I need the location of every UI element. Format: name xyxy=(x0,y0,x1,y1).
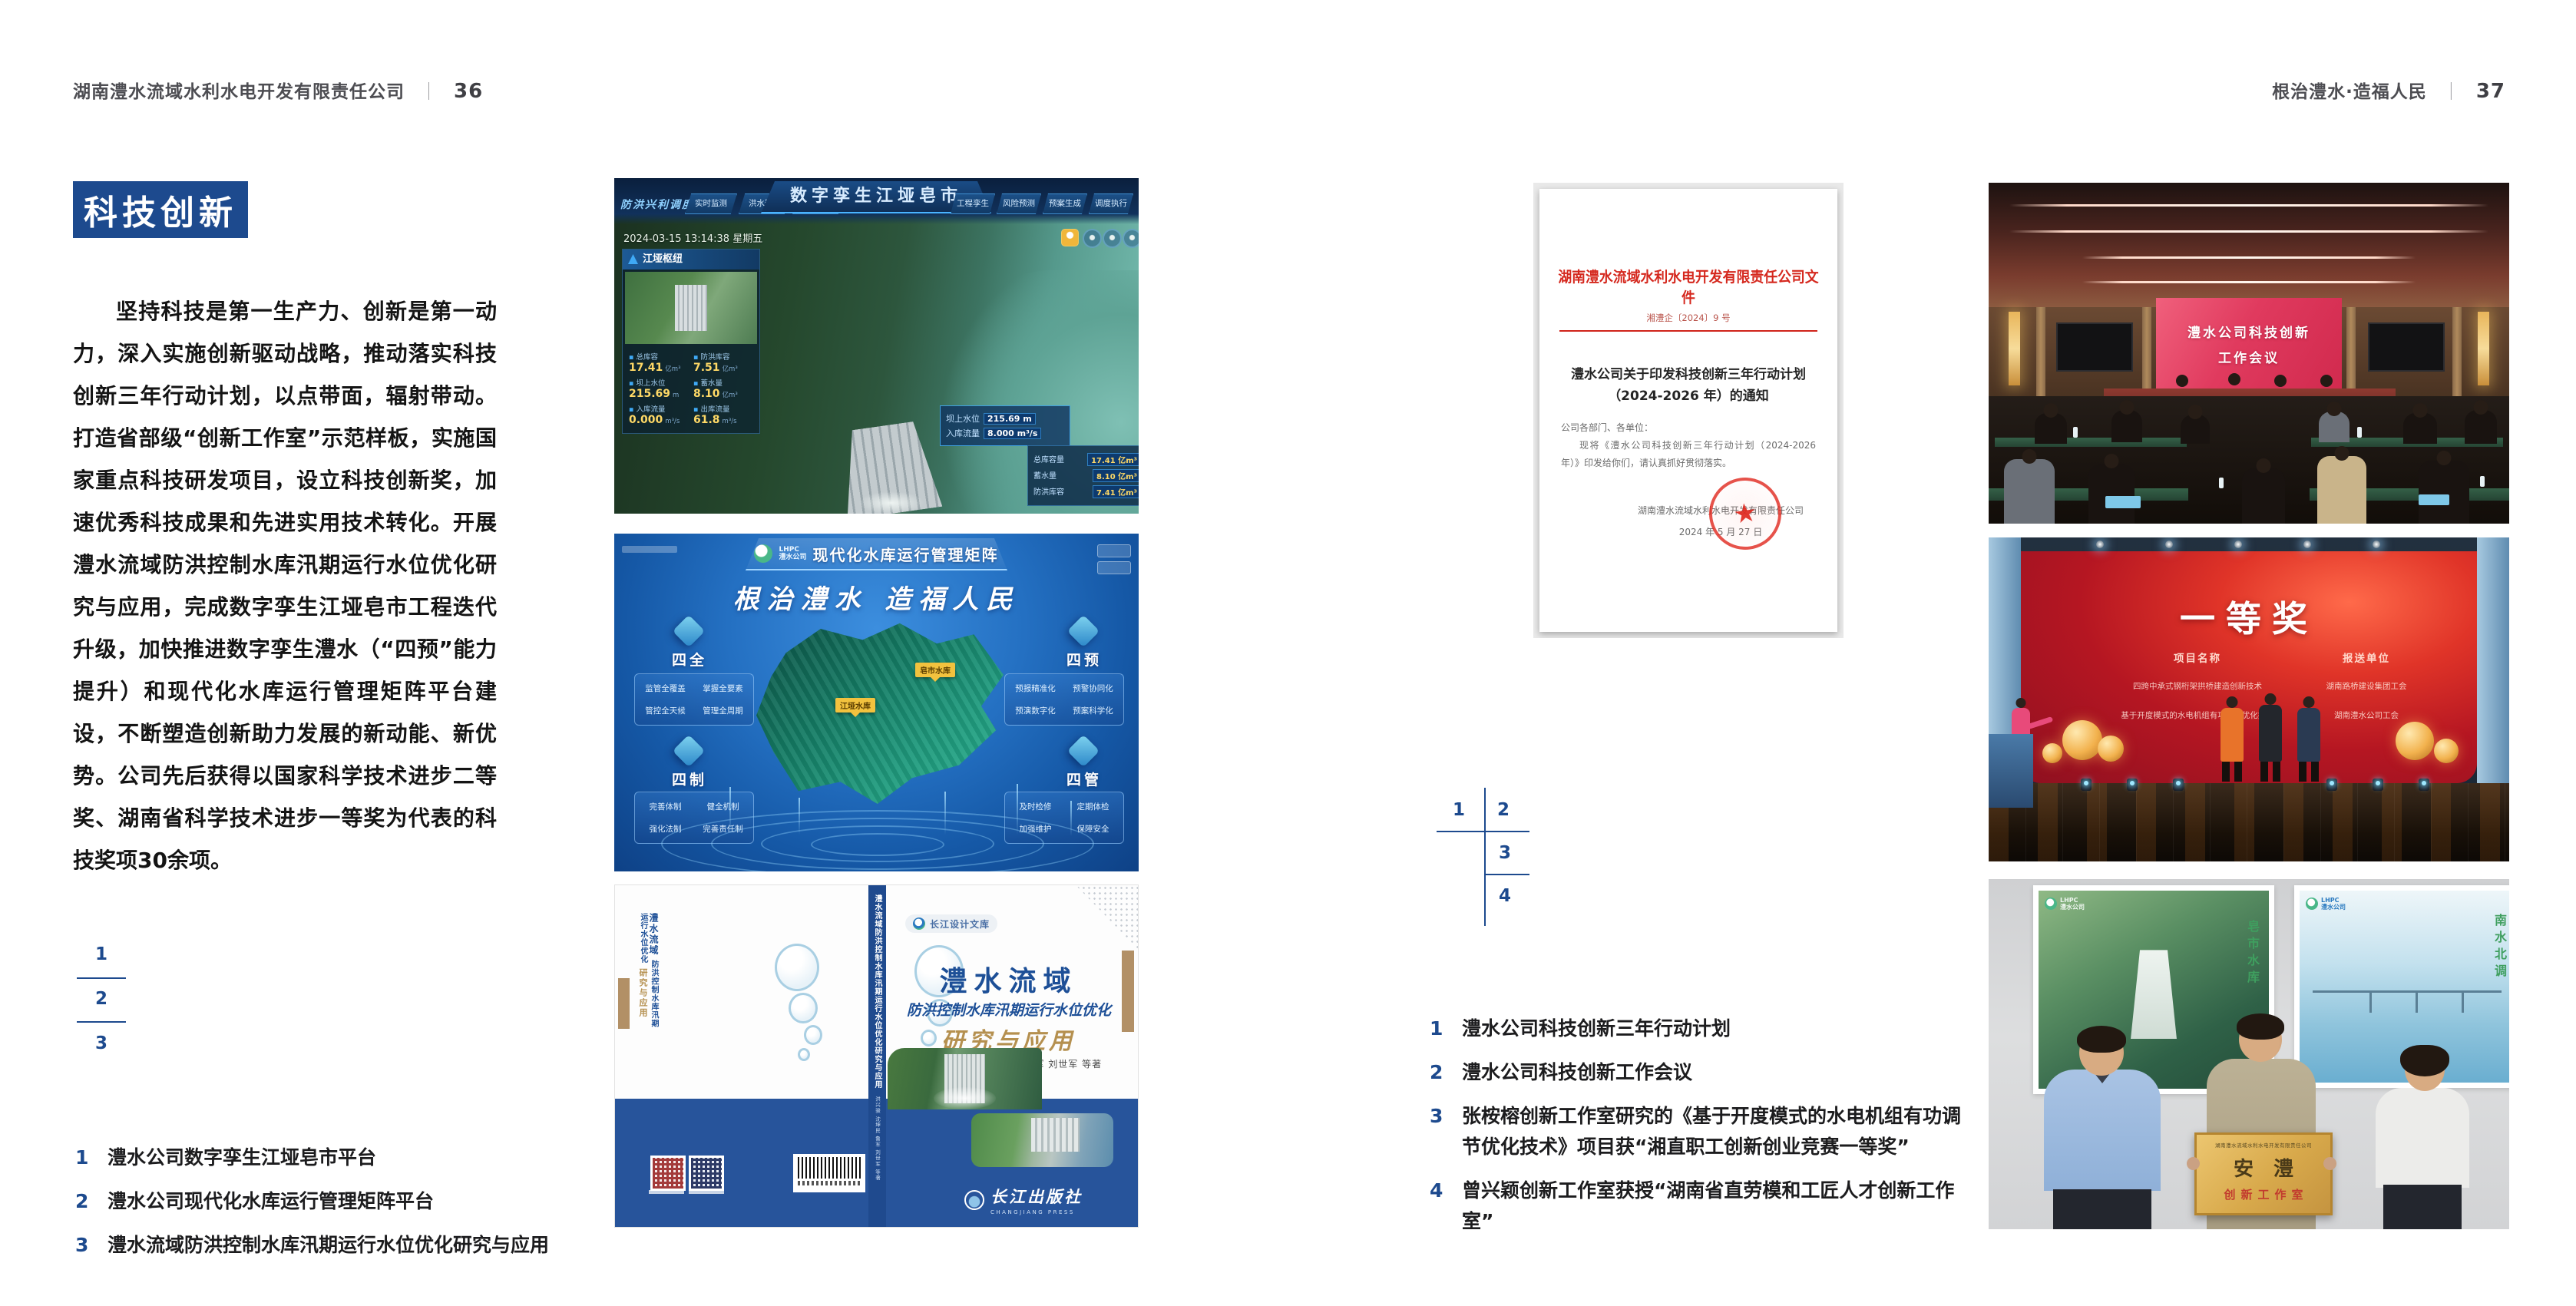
magazine-spread: 湖南澧水流域水利水电开发有限责任公司 ｜ 36 根治澧水·造福人民 ｜ 37 科… xyxy=(0,0,2576,1306)
unit-line: 湖南路桥建设集团工会 xyxy=(2259,680,2474,692)
woman-right-shirt xyxy=(2376,1088,2469,1188)
publisher-logo-icon xyxy=(913,918,925,930)
tab-plan-generate[interactable]: 预案生成 xyxy=(1043,193,1087,214)
header-divider: ｜ xyxy=(2442,77,2461,103)
qr-code xyxy=(689,1156,724,1191)
spray-mist xyxy=(934,1087,995,1109)
halftone-corner-pattern xyxy=(1076,885,1139,951)
document-sheet xyxy=(1539,189,1837,632)
waterfall xyxy=(2131,950,2177,1039)
audience-person xyxy=(2111,410,2142,442)
lhpc-logo-icon xyxy=(2306,898,2318,910)
dashboard-mode-label: 防洪兴利调度 xyxy=(620,197,694,212)
spine-authors: 洪兴骏 沈坤民 鲁军 刘世军 等著 xyxy=(874,1096,881,1181)
right-page-header: 根治澧水·造福人民 ｜ 37 xyxy=(2272,77,2505,103)
spotlight xyxy=(2303,541,2311,548)
dashboard-datetime: 2024-03-15 13:14:38 星期五 xyxy=(623,230,762,245)
group-icon-siquan xyxy=(673,615,705,647)
caption-number: 2 xyxy=(75,1186,95,1217)
group-icon-sizhi xyxy=(673,735,705,767)
group-label-sizhi: 四制 xyxy=(659,769,720,789)
podium xyxy=(1989,734,2033,808)
page-number-right: 37 xyxy=(2476,80,2505,103)
caption-row: 3 张桉榕创新工作室研究的《基于开度模式的水电机组有功调节优化技术》项目获“湘直… xyxy=(1430,1101,1976,1162)
basin-3d-map xyxy=(756,620,1004,804)
map-marker-jiangya[interactable]: 江垭水库 xyxy=(835,698,875,713)
isbn-barcode xyxy=(793,1154,865,1192)
plaque-org-line: 湖南澧水流域水利水电开发有限责任公司 xyxy=(2197,1141,2330,1149)
mini-dam xyxy=(675,285,706,331)
wall-pilaster xyxy=(2142,307,2151,396)
hub-panel-title: 江垭枢纽 xyxy=(623,250,759,269)
map-data-callout: 坝上水位215.69 m 入库流量8.000 m³/s xyxy=(940,405,1070,446)
man-left-head xyxy=(2079,1030,2124,1076)
bridge xyxy=(2313,990,2502,993)
audience-person xyxy=(2403,413,2437,444)
wall-pilaster xyxy=(2036,307,2045,396)
innovation-workshop-plaque: 湖南澧水流域水利水电开发有限责任公司 安澧 创新工作室 xyxy=(2194,1132,2333,1215)
platform-title: 现代化水库运行管理矩阵 xyxy=(813,543,999,565)
spotlight xyxy=(2373,541,2380,548)
poster-logo: LHPC澧水公司 xyxy=(2306,897,2346,911)
group-panel-siyu: 预报精准化预警协同化 预演数字化预案科学化 xyxy=(1004,673,1124,726)
caption-text: 张桉榕创新工作室研究的《基于开度模式的水电机组有功调节优化技术》项目获“湘直职工… xyxy=(1462,1101,1976,1162)
section-title: 科技创新 xyxy=(73,181,248,238)
photo-plaque-group: LHPC澧水公司 皂市水库 LHPC澧水公司 南水北调 湖南澧水流域水利水电开发 xyxy=(1989,879,2509,1229)
light-pillar xyxy=(799,798,800,835)
light-pillar xyxy=(1017,784,1018,835)
unit-line: 湖南澧水公司工会 xyxy=(2259,709,2474,721)
body-paragraph: 坚持科技是第一生产力、创新是第一动力，深入实施创新驱动战略，推动落实科技创新三年… xyxy=(73,290,497,881)
caption-row: 1 澧水公司数字孪生江垭皂市平台 xyxy=(75,1142,567,1173)
group-label-siquan: 四全 xyxy=(659,649,720,670)
fullscreen-icon[interactable] xyxy=(1123,229,1139,248)
legs xyxy=(2260,762,2280,782)
photo-matrix-platform: LHPC澧水公司 现代化水库运行管理矩阵 根治澧水 造福人民 皂市水库 江垭水库… xyxy=(614,534,1139,871)
left-captions: 1 澧水公司数字孪生江垭皂市平台 2 澧水公司现代化水库运行管理矩阵平台 3 澧… xyxy=(75,1142,567,1274)
light-pillar xyxy=(729,787,731,833)
hub-stats-grid: 总库容17.41亿m³ 防洪库容7.51亿m³ 坝上水位215.69m 蓄水量8… xyxy=(623,346,759,433)
figure-map-number: 2 xyxy=(1497,800,1510,820)
photo-award-ceremony: 一等奖 项目名称 报送单位 四跨中承式钢桁架拱桥建造创新技术 基于开度模式的水电… xyxy=(1989,537,2509,861)
caption-number: 1 xyxy=(75,1142,95,1173)
column-header-project: 项目名称 xyxy=(2105,650,2290,665)
book-title: 澧水流域 xyxy=(888,959,1129,999)
ceiling-light xyxy=(2082,281,2416,283)
woman-right-pants xyxy=(2383,1185,2462,1229)
column-header-unit: 报送单位 xyxy=(2274,650,2459,665)
ceiling-light xyxy=(2082,256,2416,259)
water-droplet xyxy=(789,993,818,1023)
right-captions: 1 澧水公司科技创新三年行动计划 2 澧水公司科技创新工作会议 3 张桉榕创新工… xyxy=(1430,1013,1976,1250)
woman-right-head xyxy=(2405,1048,2445,1091)
stat-cell: 入库流量0.000m³/s xyxy=(629,403,689,426)
audience-person xyxy=(2004,459,2055,524)
golden-orb xyxy=(2042,743,2062,763)
caption-text: 澧水公司现代化水库运行管理矩阵平台 xyxy=(107,1186,434,1217)
stat-cell: 总库容17.41亿m³ xyxy=(629,351,689,374)
figure-map-number: 1 xyxy=(95,944,107,964)
audience-person xyxy=(2319,412,2349,442)
golden-orb xyxy=(2062,720,2102,760)
hand xyxy=(2323,1157,2336,1170)
book-subtitle: 防洪控制水库汛期运行水位优化 xyxy=(882,999,1136,1020)
cover-powerhouse-photo xyxy=(971,1113,1113,1167)
screen-title-line1: 澧水公司科技创新 xyxy=(2187,322,2310,341)
audience-person xyxy=(2181,415,2210,444)
tab-realtime-monitor[interactable]: 实时监测 xyxy=(685,193,737,214)
poster-calligraphy: 皂市水库 xyxy=(2243,920,2261,987)
stat-cell: 防洪库容7.51亿m³ xyxy=(693,351,753,374)
front-tan-bar xyxy=(1122,951,1134,1032)
caption-number: 2 xyxy=(1430,1057,1450,1088)
ceiling xyxy=(1989,183,2509,307)
tab-dispatch-execute[interactable]: 调度执行 xyxy=(1089,193,1133,214)
map-marker-zaoshi[interactable]: 皂市水库 xyxy=(915,663,955,677)
book-spine: 澧水流域防洪控制水库汛期运行水位优化研究与应用 洪兴骏 沈坤民 鲁军 刘世军 等… xyxy=(868,885,886,1228)
water-droplet xyxy=(798,1048,810,1061)
company-name: 湖南澧水流域水利水电开发有限责任公司 xyxy=(73,77,405,103)
presenter-suit xyxy=(2259,705,2282,762)
spotlight xyxy=(2234,541,2242,548)
spine-title: 澧水流域防洪控制水库汛期运行水位优化研究与应用 xyxy=(871,894,883,1089)
stat-cell: 坝上水位215.69m xyxy=(629,377,689,400)
audience-person xyxy=(2035,413,2067,444)
man-center-head xyxy=(2239,1017,2282,1062)
document-red-rule xyxy=(1559,330,1817,332)
winner-navy xyxy=(2297,708,2320,762)
tissue-box xyxy=(2105,496,2141,508)
caption-row: 4 曾兴颖创新工作室获授“湖南省直劳模和工匠人才创新工作室” xyxy=(1430,1175,1976,1237)
audience-person xyxy=(2317,456,2366,524)
side-screen xyxy=(2368,322,2445,372)
platform-button[interactable] xyxy=(1097,561,1131,574)
group-icon-siguan xyxy=(1067,735,1100,767)
water-bottle xyxy=(2219,478,2224,488)
platform-button[interactable] xyxy=(1097,544,1131,557)
stage-light xyxy=(2419,779,2429,791)
figure-map-number: 3 xyxy=(1499,843,1511,863)
side-screen xyxy=(2056,322,2133,372)
reservoir-summary-panel: 总库容量17.41 亿m³ 蓄水量8.10 亿m³ 防洪库容7.41 亿m³ xyxy=(1027,445,1139,506)
desk-row xyxy=(1995,438,2187,447)
header-divider: ｜ xyxy=(420,77,438,103)
back-cover-title: 澧水流域 防洪控制水库汛期运行水位优化 研究与应用 xyxy=(638,913,659,1030)
caption-row: 1 澧水公司科技创新三年行动计划 xyxy=(1430,1013,1976,1044)
dam xyxy=(1031,1118,1080,1152)
qr-caption-line xyxy=(689,1190,724,1194)
group-label-siyu: 四预 xyxy=(1053,649,1115,670)
man-left-pants xyxy=(2053,1189,2151,1229)
caption-number: 4 xyxy=(1430,1175,1450,1237)
audience-person xyxy=(2242,468,2285,524)
lhpc-logo-icon xyxy=(2045,898,2057,910)
figure-map-line xyxy=(1484,874,1529,875)
plaque-main-text: 安澧 xyxy=(2197,1153,2330,1182)
tab-engineering-twin[interactable]: 工程孪生 xyxy=(951,193,995,214)
caption-text: 澧水流域防洪控制水库汛期运行水位优化研究与应用 xyxy=(107,1230,549,1261)
tissue-box xyxy=(2419,494,2449,505)
locate-icon[interactable] xyxy=(1103,229,1122,248)
winner-orange xyxy=(2221,708,2244,762)
figure-map-line xyxy=(77,1021,126,1023)
screen-title-line2: 工作会议 xyxy=(2218,347,2280,366)
stage-light xyxy=(2326,779,2337,791)
panelist-head xyxy=(2274,375,2287,387)
left-page-header: 湖南澧水流域水利水电开发有限责任公司 ｜ 36 xyxy=(73,77,483,103)
man-left-shirt xyxy=(2044,1070,2161,1191)
water-bottle xyxy=(2073,427,2078,438)
water-droplet xyxy=(775,944,819,991)
dam-spillway-foam xyxy=(858,491,924,514)
group-icon-siyu xyxy=(1067,615,1100,647)
award-title: 一等奖 xyxy=(2021,591,2477,642)
series-badge: 长江设计文库 xyxy=(905,914,997,933)
figure-map-number: 2 xyxy=(95,989,107,1009)
qr-code xyxy=(650,1156,686,1191)
settings-icon[interactable] xyxy=(1083,229,1102,248)
group-panel-siquan: 监管全覆盖掌握全要素 管控全天候管理全周期 xyxy=(634,673,754,726)
hub-info-panel: 江垭枢纽 总库容17.41亿m³ 防洪库容7.51亿m³ 坝上水位215.69m… xyxy=(622,249,760,434)
plaque-sub-text: 创新工作室 xyxy=(2197,1186,2330,1202)
document-number: 湘澧企〔2024〕9 号 xyxy=(1544,312,1833,324)
figure-map-number: 1 xyxy=(1453,800,1465,820)
stat-cell: 蓄水量8.10亿m³ xyxy=(693,377,753,400)
caption-row: 2 澧水公司科技创新工作会议 xyxy=(1430,1057,1976,1088)
photo-book-cover: 澧水流域 防洪控制水库汛期运行水位优化 研究与应用 澧水流域防洪控制水库汛期运行… xyxy=(614,884,1139,1228)
figure-map-number: 4 xyxy=(1499,886,1511,906)
golden-orb xyxy=(2396,722,2434,760)
radar-ring xyxy=(811,833,944,856)
audience-person xyxy=(2465,410,2497,444)
platform-header: LHPC澧水公司 现代化水库运行管理矩阵 xyxy=(746,538,1007,570)
photo-digital-twin-dashboard: 防洪兴利调度 实时监测 洪水预报 防洪预警 数字孪生江垭皂市 风险预测 预案生成… xyxy=(614,178,1139,514)
group-label-siguan: 四管 xyxy=(1053,769,1115,789)
audience-person xyxy=(2088,464,2135,524)
caption-number: 1 xyxy=(1430,1013,1450,1044)
photo-official-document: 湖南澧水流域水利水电开发有限责任公司文件 湘澧企〔2024〕9 号 澧水公司关于… xyxy=(1533,183,1844,638)
seal-star-icon: ★ xyxy=(1732,499,1759,528)
golden-orb xyxy=(2098,736,2124,762)
document-body: 现将《澧水公司科技创新三年行动计划（2024-2026 年）》印发给你们，请认真… xyxy=(1561,437,1816,472)
qr-caption-line xyxy=(649,1190,684,1194)
publisher-name-en: CHANGJIANG PRESS xyxy=(990,1209,1083,1215)
hub-thumbnail-photo xyxy=(625,272,757,344)
user-icon[interactable] xyxy=(1061,229,1079,246)
document-red-header: 湖南澧水流域水利水电开发有限责任公司文件 xyxy=(1553,266,1824,307)
stage-floor xyxy=(1989,783,2509,861)
wall-pilaster xyxy=(2346,307,2356,396)
figure-map-number: 3 xyxy=(95,1033,107,1053)
platform-datetime-placeholder xyxy=(622,546,677,553)
water-bottle xyxy=(2480,476,2485,487)
caption-number: 3 xyxy=(1430,1101,1450,1162)
panelist-head xyxy=(2320,375,2333,387)
document-title: 澧水公司关于印发科技创新三年行动计划 （2024-2026 年）的通知 xyxy=(1544,364,1833,407)
figure-map-line xyxy=(1437,831,1529,832)
back-tan-bar xyxy=(618,978,630,1029)
series-name: 长江设计文库 xyxy=(930,918,990,931)
caption-text: 澧水公司科技创新工作会议 xyxy=(1462,1057,1692,1088)
tab-risk-forecast[interactable]: 风险预测 xyxy=(997,193,1041,214)
poster-logo: LHPC澧水公司 xyxy=(2045,897,2085,911)
stage-light xyxy=(2373,779,2383,791)
hand xyxy=(2187,1157,2200,1170)
legs xyxy=(2299,762,2319,782)
ceiling-light xyxy=(2009,204,2488,207)
figure-map-line xyxy=(77,977,126,979)
stat-cell: 出库流量61.8m³/s xyxy=(693,403,753,426)
caption-text: 澧水公司数字孪生江垭皂市平台 xyxy=(107,1142,376,1173)
cover-dam-photo xyxy=(888,1048,1042,1109)
panelist-head xyxy=(2176,375,2188,387)
slogan-text: 根治澧水·造福人民 xyxy=(2272,77,2427,103)
spotlight xyxy=(2165,541,2173,548)
publisher-name: 长江出版社 xyxy=(990,1185,1083,1208)
wall-lamp xyxy=(2478,312,2489,385)
poster-calligraphy: 南水北调 xyxy=(2490,914,2508,981)
lhpc-logo-text: LHPC澧水公司 xyxy=(779,546,806,561)
caption-row: 3 澧水流域防洪控制水库汛期运行水位优化研究与应用 xyxy=(75,1230,567,1261)
light-pillar xyxy=(944,792,946,835)
water-droplet xyxy=(804,1025,822,1045)
publisher-logo-icon xyxy=(964,1190,984,1210)
caption-text: 澧水公司科技创新三年行动计划 xyxy=(1462,1013,1731,1044)
wall-pilaster xyxy=(2452,307,2462,396)
legs xyxy=(2222,762,2242,782)
stage-light xyxy=(2127,779,2138,791)
publisher-block: 长江出版社 CHANGJIANG PRESS xyxy=(964,1185,1083,1215)
light-pillar xyxy=(1070,801,1072,836)
water-bottle xyxy=(2357,427,2362,438)
ceiling-light xyxy=(2009,230,2488,233)
audience-person xyxy=(2419,461,2469,524)
caption-row: 2 澧水公司现代化水库运行管理矩阵平台 xyxy=(75,1186,567,1217)
stage-light xyxy=(2081,779,2092,791)
stage-light xyxy=(2173,779,2184,791)
caption-number: 3 xyxy=(75,1230,95,1261)
document-salutation: 公司各部门、各单位： xyxy=(1561,419,1653,437)
page-number-left: 36 xyxy=(454,80,483,103)
wall-lamp xyxy=(2009,312,2020,385)
figure-map-vline xyxy=(1484,788,1486,926)
spotlight xyxy=(2096,541,2104,548)
platform-slogan: 根治澧水 造福人民 xyxy=(614,578,1139,616)
lhpc-logo-icon xyxy=(754,544,772,563)
caption-text: 曾兴颖创新工作室获授“湖南省直劳模和工匠人才创新工作室” xyxy=(1462,1175,1976,1237)
photo-innovation-meeting: 澧水公司科技创新 工作会议 xyxy=(1989,183,2509,524)
golden-orb xyxy=(2434,739,2459,763)
panelist-head xyxy=(2228,373,2240,385)
